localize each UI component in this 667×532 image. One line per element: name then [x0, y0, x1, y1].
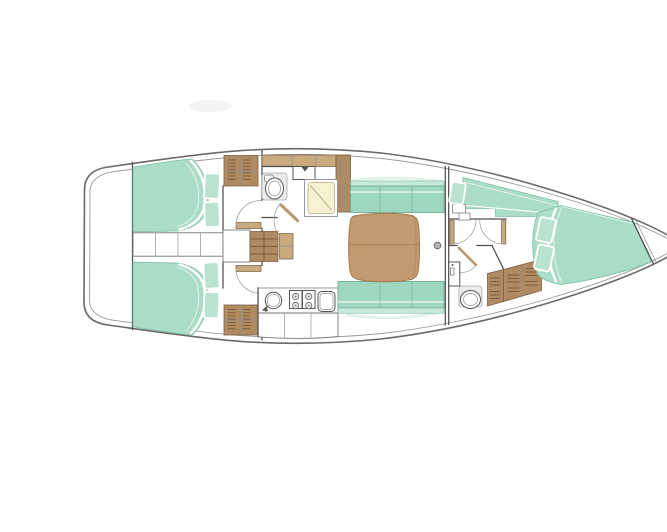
settee-port — [351, 186, 445, 213]
cabin-door-leaf — [236, 223, 261, 229]
louver-locker — [488, 270, 504, 307]
pillow — [204, 292, 220, 319]
yacht-floor-plan — [40, 16, 667, 516]
settee-starboard — [338, 282, 444, 309]
faucet-icon — [451, 268, 455, 275]
settee-backrest — [338, 308, 444, 313]
pillow — [203, 262, 219, 289]
engine-box — [223, 230, 250, 262]
cabin-door-leaf — [236, 266, 261, 272]
pillow — [204, 173, 220, 199]
faucet-knob — [264, 308, 267, 311]
pillow — [204, 202, 220, 228]
locker-column — [336, 155, 351, 212]
corridor-door-leaf — [450, 221, 454, 245]
mast-post — [434, 242, 441, 249]
saloon-table — [349, 213, 420, 281]
berth-step — [453, 205, 466, 214]
photo-artifact-smudge — [188, 100, 232, 112]
berth-step — [459, 213, 470, 220]
vanity-shelf — [262, 155, 336, 167]
drain-dot — [452, 264, 454, 266]
galley — [258, 288, 338, 338]
settee-backrest — [351, 181, 445, 186]
pillow — [449, 182, 466, 205]
round-sink — [265, 292, 281, 308]
galley-lower-cabinets — [258, 313, 338, 338]
cabin-door-leaf — [502, 221, 506, 245]
